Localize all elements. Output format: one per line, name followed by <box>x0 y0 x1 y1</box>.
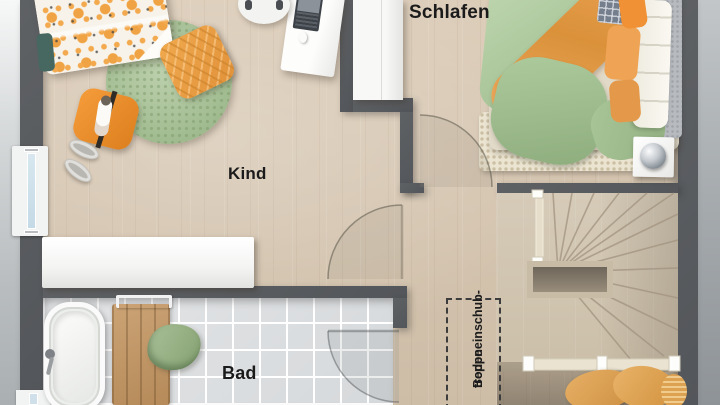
sideboard <box>42 237 254 288</box>
window-glass <box>27 153 36 229</box>
computer-mouse <box>299 32 307 43</box>
stair-area-floor <box>497 193 678 372</box>
exterior-ground-right <box>698 0 720 405</box>
kids-bed-blanket <box>36 33 55 72</box>
room-label-bad: Bad <box>222 363 257 384</box>
toy-dog <box>93 97 113 137</box>
wall-door-jamb <box>400 183 424 193</box>
wall-kind-hall <box>400 112 413 192</box>
towel-rail <box>116 295 172 308</box>
bath-faucet <box>42 347 58 377</box>
window-left-wall <box>12 146 48 236</box>
laptop <box>293 0 324 32</box>
nightstand <box>633 137 675 178</box>
wall-schlafen-south-west <box>353 98 413 112</box>
wall-schlafen-stairs <box>497 183 678 193</box>
window-glass <box>29 393 38 405</box>
orange-pillow <box>609 79 642 123</box>
wardrobe <box>353 0 403 100</box>
orange-cushion <box>618 0 649 30</box>
attic-stairs-label-line2: treppe <box>471 350 487 388</box>
laundry-pile <box>565 366 687 405</box>
orange-pillow <box>604 25 642 82</box>
wall-bad-east <box>393 298 407 328</box>
room-label-kind: Kind <box>228 164 267 184</box>
sphere-lamp <box>640 143 666 169</box>
window-handle <box>24 148 39 152</box>
floor-plan: Schlafen Kind Bad Bodeneinschub- treppe <box>0 0 720 405</box>
room-label-schlafen: Schlafen <box>409 2 490 24</box>
window-handle <box>24 230 39 234</box>
